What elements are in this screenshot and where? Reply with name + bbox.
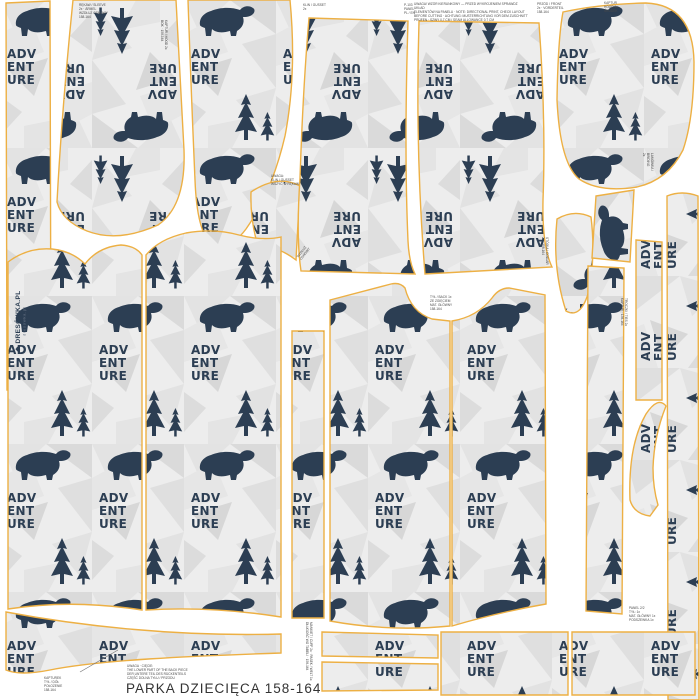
pattern-piece-body-center-left — [330, 284, 450, 629]
brand-logo-icon: ❖ — [14, 346, 22, 352]
pattern-piece-cuff-bottom — [322, 662, 438, 691]
piece-label-hood-back-label: KAPTUREK TYŁ / DÓŁ POŁOŻENIE 158-164 — [44, 676, 62, 692]
brand-logo: ❖ DRESÓWKA.PL dresowka.pl — [14, 290, 27, 352]
piece-label-bottom-note: UWAGA · CIĘCIE: THE LOWER PART OF THE BA… — [127, 664, 188, 680]
piece-label-collar-label: STÓJKA / COLLAR 2x · 158-164 — [541, 237, 549, 265]
piece-label-panel-top-note: P-103 PANEL PL / EN — [404, 3, 415, 15]
pattern-piece-body-center-right — [452, 288, 546, 626]
panel-title: PARKA DZIECIĘCA 158-164 — [126, 681, 321, 696]
piece-label-binding-label: LAMÓWKA / BINDING 2x — [642, 153, 654, 171]
pattern-piece-strip-front-edge — [586, 266, 624, 614]
pattern-piece-strip-right-top — [592, 190, 634, 262]
piece-label-front-label: PRZÓD / FRONT 2x · VORDERTEIL 158-164 — [537, 2, 564, 14]
pattern-piece-strip-center — [292, 331, 324, 618]
pattern-piece-strip-binding-trees — [636, 240, 662, 400]
fabric-panel-preview: ADVENTURE ADVENTURE ADVENTURE RĘKAW / SL… — [0, 0, 700, 700]
piece-label-drawstring-label: TROCZKI / TIES 2x KAPTUR · 158-164 — [620, 298, 628, 326]
piece-label-gusset-label: UWAGA: KLIN / GUSSET WSZYĆ W RĘKAW — [271, 174, 299, 186]
piece-label-sleeve-label: RĘKAW / SLEEVE 2x · ÄRMEL WZDŁUŻ OSNOWY … — [79, 3, 108, 19]
piece-label-back-label: TYŁ / BACK 1x ZE ZGIĘCIEM MAT. GŁÓWNY 15… — [430, 295, 452, 311]
pattern-piece-strip-right-edge — [667, 193, 699, 700]
sewing-pattern-panel: ADVENTURE ADVENTURE ADVENTURE — [0, 0, 700, 700]
pattern-piece-sleeve-top-center-left — [298, 18, 415, 274]
piece-label-hood-center-label: KAPTUR HOOD 1x ŚRODEK — [604, 1, 618, 13]
brand-logo-subtext: dresowka.pl — [22, 290, 27, 352]
brand-logo-text: ❖ DRESÓWKA.PL — [14, 290, 22, 352]
piece-label-cuff-note: MANKIET / CUFF 2x · PASEK / WELT 1x DŁUG… — [305, 622, 313, 680]
pattern-piece-sleeve-top-center-right — [418, 21, 552, 274]
pattern-piece-pocket-left — [441, 632, 568, 695]
piece-label-cutting-instructions: UWAGA! WZÓR KIERUNKOWY — PRZED WYKROJENI… — [414, 2, 528, 22]
piece-label-gusset-top-note: KLIN / GUSSET 2x — [303, 3, 326, 11]
pattern-piece-cuff-top — [322, 632, 438, 658]
piece-label-panel-note: PANEL 2/2 TYŁ: 1x MAT. GŁÓWNY 1x PODSZEW… — [629, 606, 655, 622]
pattern-piece-hood-right — [557, 3, 694, 189]
piece-label-hood-side-label: KAPTUR / HOOD 2x BOK · 158-164 — [160, 20, 168, 50]
pattern-piece-body-left-a — [8, 245, 142, 610]
pattern-piece-body-left-b — [146, 231, 281, 617]
pattern-piece-pocket-right — [572, 632, 695, 695]
pattern-piece-collar-curve — [630, 402, 666, 516]
